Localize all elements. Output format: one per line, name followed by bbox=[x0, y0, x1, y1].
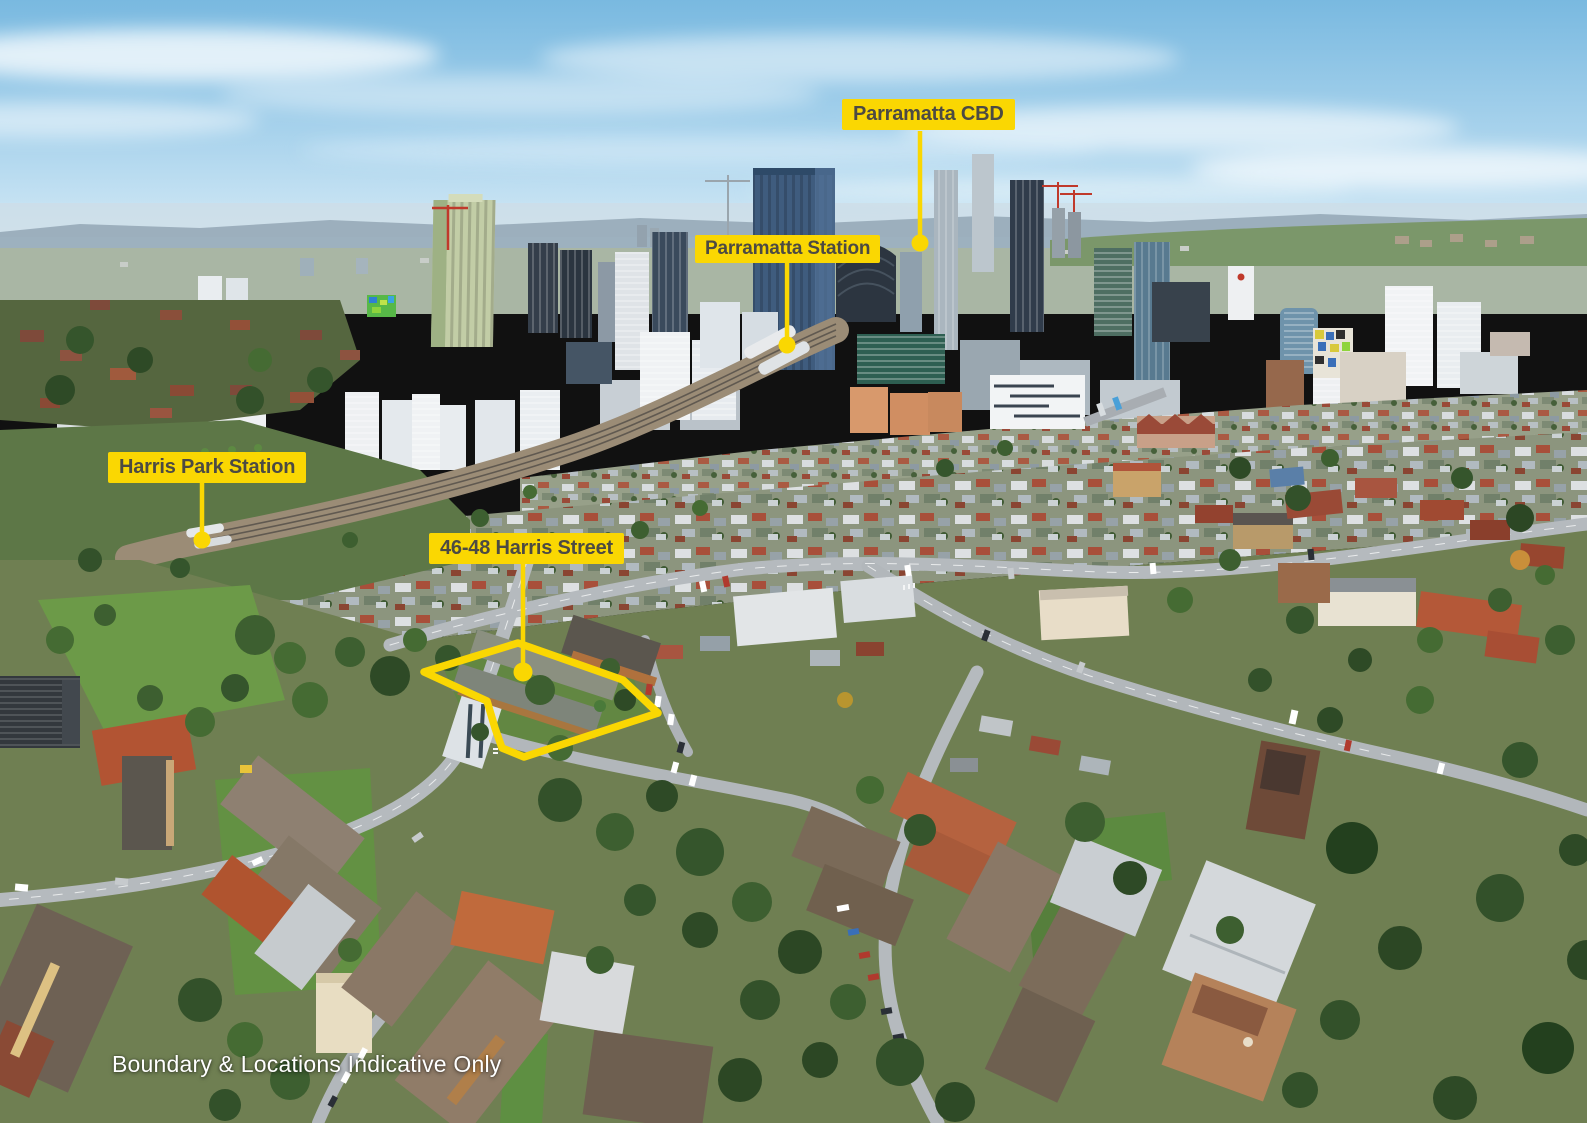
callout-harris-park-station: Harris Park Station bbox=[108, 452, 306, 483]
callout-parramatta-cbd: Parramatta CBD bbox=[842, 99, 1015, 130]
white-balcony-building bbox=[990, 375, 1085, 429]
aerial-property-photo: Parramatta CBD Parramatta Station Harris… bbox=[0, 0, 1587, 1123]
led-billboard-building bbox=[367, 295, 396, 317]
location-dot-station bbox=[779, 337, 796, 354]
excavator-icon bbox=[240, 765, 252, 773]
heritage-red-row bbox=[1137, 414, 1215, 448]
callout-subject-property: 46-48 Harris Street bbox=[429, 533, 624, 564]
location-dot-subject bbox=[514, 663, 533, 682]
location-dot-harris-park bbox=[194, 532, 211, 549]
palm-tree-icon bbox=[594, 700, 606, 712]
green-glass-tower bbox=[431, 194, 496, 347]
callout-parramatta-station: Parramatta Station bbox=[695, 235, 880, 263]
location-dot-cbd bbox=[912, 235, 929, 252]
dark-modern-apartment bbox=[0, 676, 80, 748]
disclaimer-text: Boundary & Locations Indicative Only bbox=[112, 1051, 501, 1078]
aerial-photo-scene bbox=[0, 0, 1587, 1123]
